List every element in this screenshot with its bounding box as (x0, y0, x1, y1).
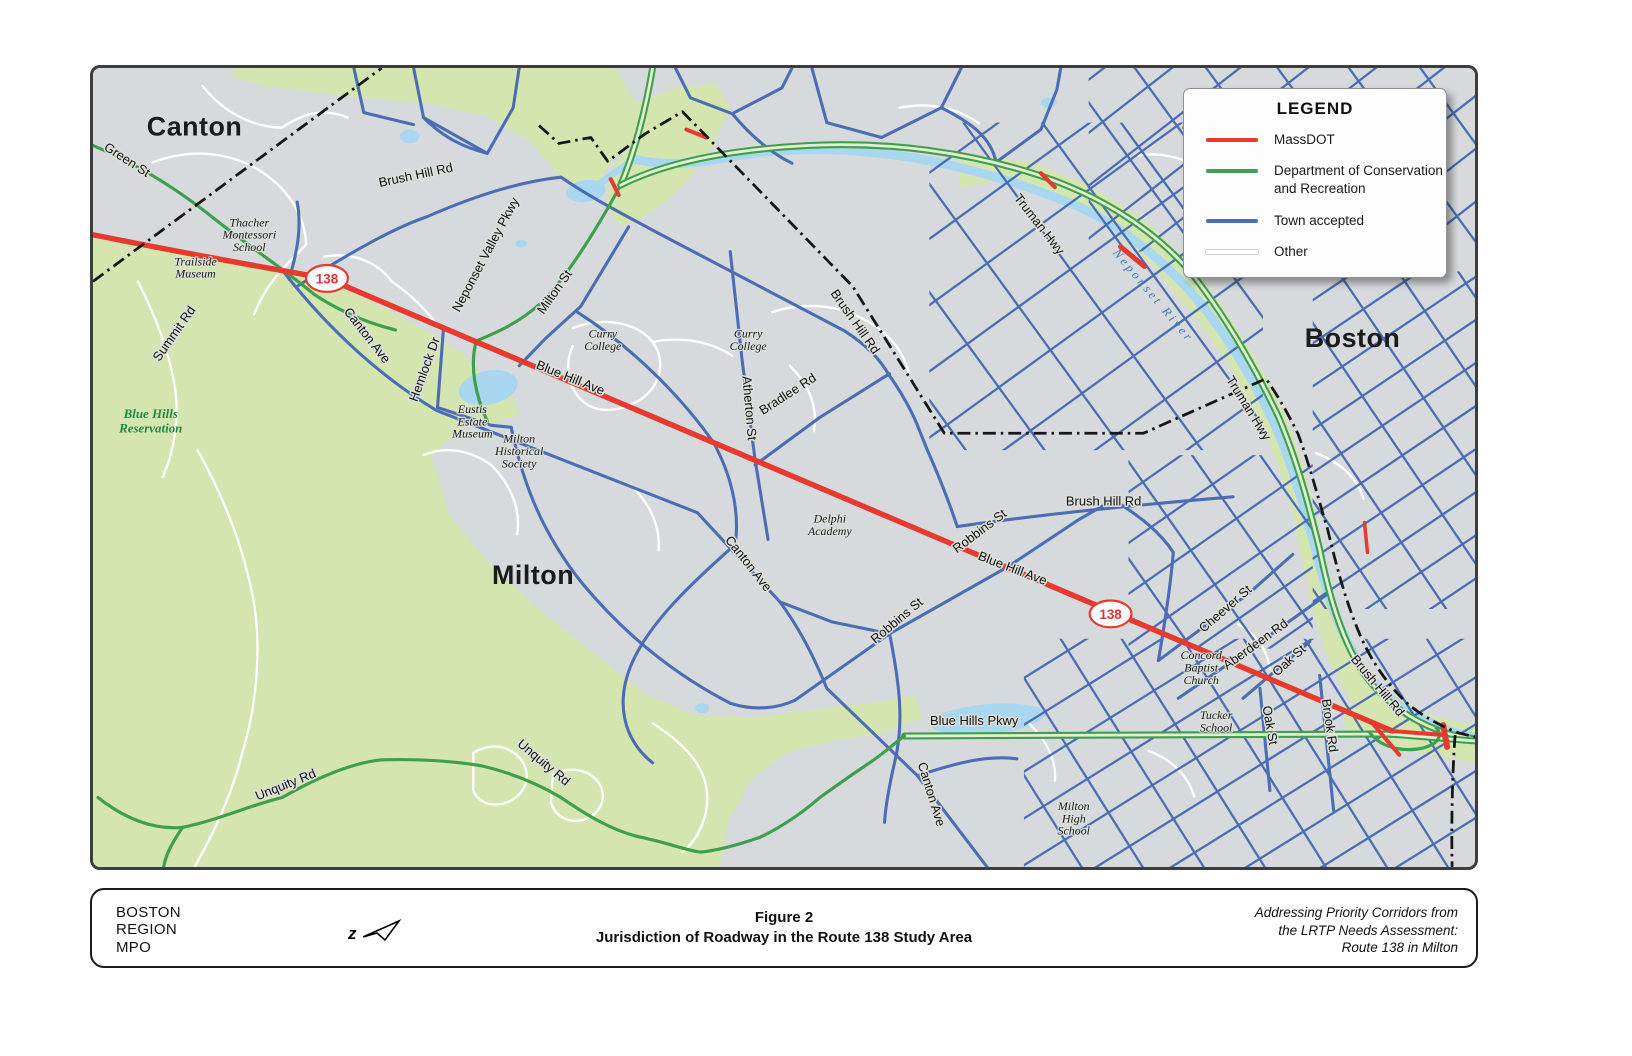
svg-text:Blue Hill Ave: Blue Hill Ave (976, 548, 1049, 588)
svg-text:Brush Hill Rd: Brush Hill Rd (1066, 494, 1141, 509)
svg-text:EustisEstateMuseum: EustisEstateMuseum (451, 402, 493, 441)
svg-text:Brush Hill Rd: Brush Hill Rd (377, 160, 454, 190)
legend-swatch-massdot (1206, 138, 1258, 142)
svg-text:Robbins St: Robbins St (950, 506, 1010, 556)
svg-text:Blue HillsReservation: Blue HillsReservation (118, 406, 182, 435)
svg-text:Milton: Milton (492, 560, 574, 590)
svg-text:Milton St: Milton St (534, 267, 575, 317)
credit-line-1: Addressing Priority Corridors from (1255, 904, 1458, 922)
svg-text:Atherton St: Atherton St (739, 375, 760, 441)
svg-text:ThacherMontessoriSchool: ThacherMontessoriSchool (221, 215, 276, 254)
footer-bar: BOSTON REGION MPO z Figure 2 Jurisdictio… (90, 888, 1478, 968)
credit-text: Addressing Priority Corridors from the L… (1255, 904, 1458, 957)
svg-text:Blue Hills Pkwy: Blue Hills Pkwy (930, 713, 1019, 728)
legend-swatch-town (1206, 219, 1258, 223)
svg-text:Oak St: Oak St (1269, 641, 1309, 679)
svg-text:Robbins St: Robbins St (868, 594, 926, 646)
svg-text:Boston: Boston (1305, 323, 1401, 353)
legend-label-other: Other (1274, 243, 1308, 261)
svg-text:CurryCollege: CurryCollege (584, 327, 622, 353)
legend-label-dcr-line2: and Recreation (1274, 180, 1443, 198)
svg-text:Canton Ave: Canton Ave (722, 533, 775, 595)
svg-text:138: 138 (1099, 607, 1122, 622)
legend-label-dcr: Department of Conservation and Recreatio… (1274, 162, 1443, 198)
svg-text:MiltonHighSchool: MiltonHighSchool (1057, 799, 1091, 838)
svg-text:138: 138 (316, 271, 339, 286)
svg-text:ConcordBaptistChurch: ConcordBaptistChurch (1181, 648, 1222, 687)
svg-text:TuckerSchool: TuckerSchool (1200, 708, 1233, 734)
legend-item-massdot: MassDOT (1206, 131, 1446, 149)
svg-text:Canton: Canton (147, 112, 243, 142)
figure-page: 138138CantonMiltonBostonGreen StBrush Hi… (0, 0, 1632, 1056)
credit-line-3: Route 138 in Milton (1255, 939, 1458, 957)
legend-label-massdot: MassDOT (1274, 131, 1335, 149)
legend-item-town: Town accepted (1206, 212, 1446, 230)
svg-text:Blue Hill Ave: Blue Hill Ave (534, 357, 607, 398)
svg-text:Neponset Valley Pkwy: Neponset Valley Pkwy (449, 194, 522, 314)
legend-item-dcr: Department of Conservation and Recreatio… (1206, 162, 1446, 198)
svg-text:CurryCollege: CurryCollege (730, 327, 768, 353)
legend: LEGEND MassDOT Department of Conservatio… (1183, 88, 1447, 278)
legend-title: LEGEND (1184, 99, 1446, 119)
svg-text:Canton Ave: Canton Ave (915, 760, 949, 828)
credit-line-2: the LRTP Needs Assessment: (1255, 922, 1458, 940)
legend-label-town: Town accepted (1274, 212, 1364, 230)
legend-label-dcr-line1: Department of Conservation (1274, 162, 1443, 180)
legend-swatch-other (1206, 250, 1258, 254)
svg-text:TrailsideMuseum: TrailsideMuseum (174, 254, 217, 280)
legend-swatch-dcr (1206, 169, 1258, 173)
svg-text:Oak St: Oak St (1260, 705, 1282, 747)
svg-text:DelphiAcademy: DelphiAcademy (807, 511, 852, 537)
legend-item-other: Other (1206, 243, 1446, 261)
svg-text:Green St: Green St (102, 139, 154, 180)
